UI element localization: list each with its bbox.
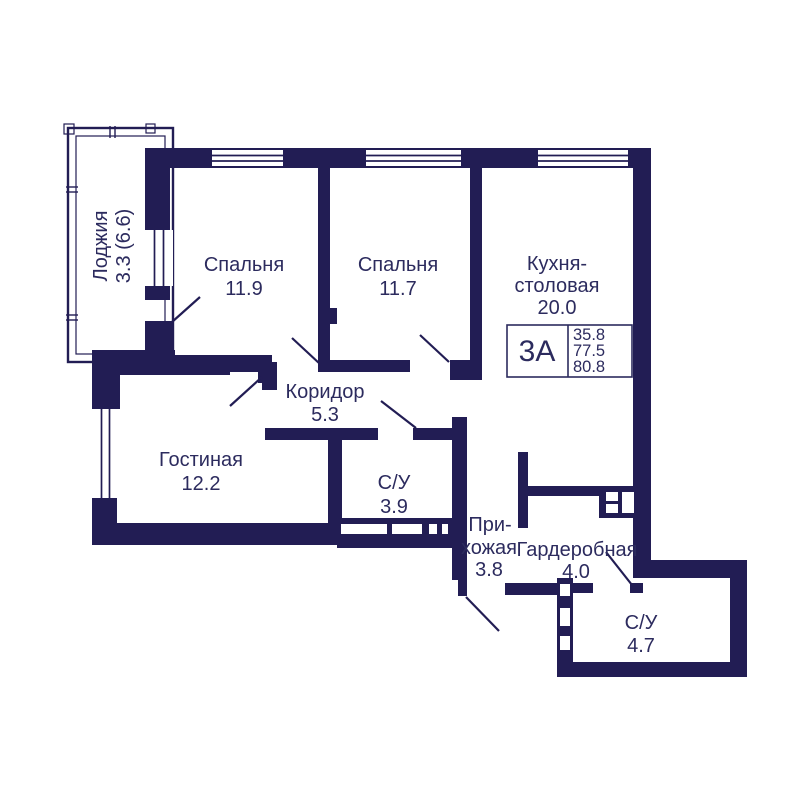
room-area-bedroom-1: 11.9: [225, 278, 262, 300]
room-area-kitchen: 20.0: [538, 297, 577, 319]
room-label-hallway-line2: хожая: [461, 537, 517, 559]
room-label-bathroom-2: С/У: [625, 612, 658, 634]
apartment-type: 3А: [519, 335, 556, 368]
room-area-bathroom-2: 4.7: [627, 635, 655, 657]
walls: [92, 148, 747, 677]
room-label-living-room: Гостиная: [159, 449, 243, 471]
window-top-3: [538, 150, 628, 166]
room-area-hallway: 3.8: [475, 559, 503, 581]
window-living-room: [94, 409, 119, 498]
info-box: 3А 35.8 77.5 80.8: [507, 325, 632, 377]
room-area-bedroom-2: 11.7: [379, 278, 416, 300]
floor-plan-page: Лоджия 3.3 (6.6) Спальня 11.9 Спальня 11…: [0, 0, 800, 800]
room-area-living-room: 12.2: [182, 473, 221, 495]
window-top-1: [212, 150, 283, 166]
door-swing-bathroom-1: [381, 401, 416, 428]
room-label-loggia: Лоджия: [90, 211, 112, 282]
window-top-2: [366, 150, 461, 166]
room-label-wardrobe: Гардеробная: [517, 539, 638, 561]
room-label-bedroom-2: Спальня: [358, 254, 438, 276]
door-swing-entrance: [466, 597, 499, 631]
room-label-bathroom-1: С/У: [378, 472, 411, 494]
room-area-loggia: 3.3 (6.6): [113, 209, 135, 283]
door-swing-bedroom-1: [292, 338, 320, 364]
room-label-corridor: Коридор: [286, 381, 365, 403]
room-area-bathroom-1: 3.9: [380, 496, 408, 518]
door-swing-bedroom-2: [420, 335, 449, 362]
area-total-value: 80.8: [573, 358, 605, 376]
room-label-kitchen-line1: Кухня-: [527, 253, 587, 275]
room-area-wardrobe: 4.0: [562, 561, 590, 583]
room-label-kitchen-line2: столовая: [515, 275, 600, 297]
room-area-corridor: 5.3: [311, 404, 339, 426]
room-label-bedroom-1: Спальня: [204, 254, 284, 276]
door-swing-loggia: [172, 297, 200, 322]
room-label-hallway-line1: При-: [468, 514, 511, 536]
door-swing-living-room: [230, 377, 262, 406]
window-loggia-bedroom: [145, 230, 173, 286]
floor-plan: Лоджия 3.3 (6.6) Спальня 11.9 Спальня 11…: [0, 0, 800, 800]
